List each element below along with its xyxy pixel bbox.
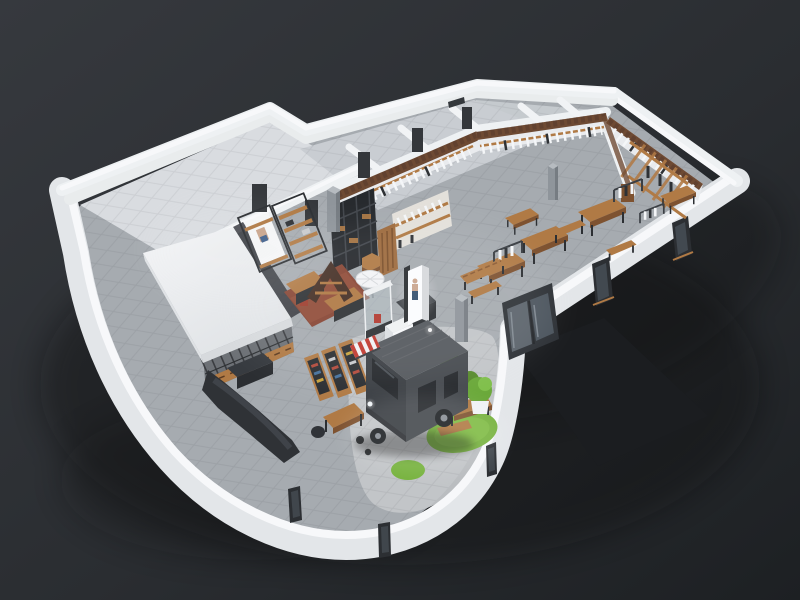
concrete-pillar-3 (548, 163, 558, 200)
concrete-pillar-1 (327, 186, 341, 232)
window-curve-1 (288, 486, 302, 523)
floorplan-render (0, 0, 800, 600)
window-curve-2 (378, 522, 391, 558)
